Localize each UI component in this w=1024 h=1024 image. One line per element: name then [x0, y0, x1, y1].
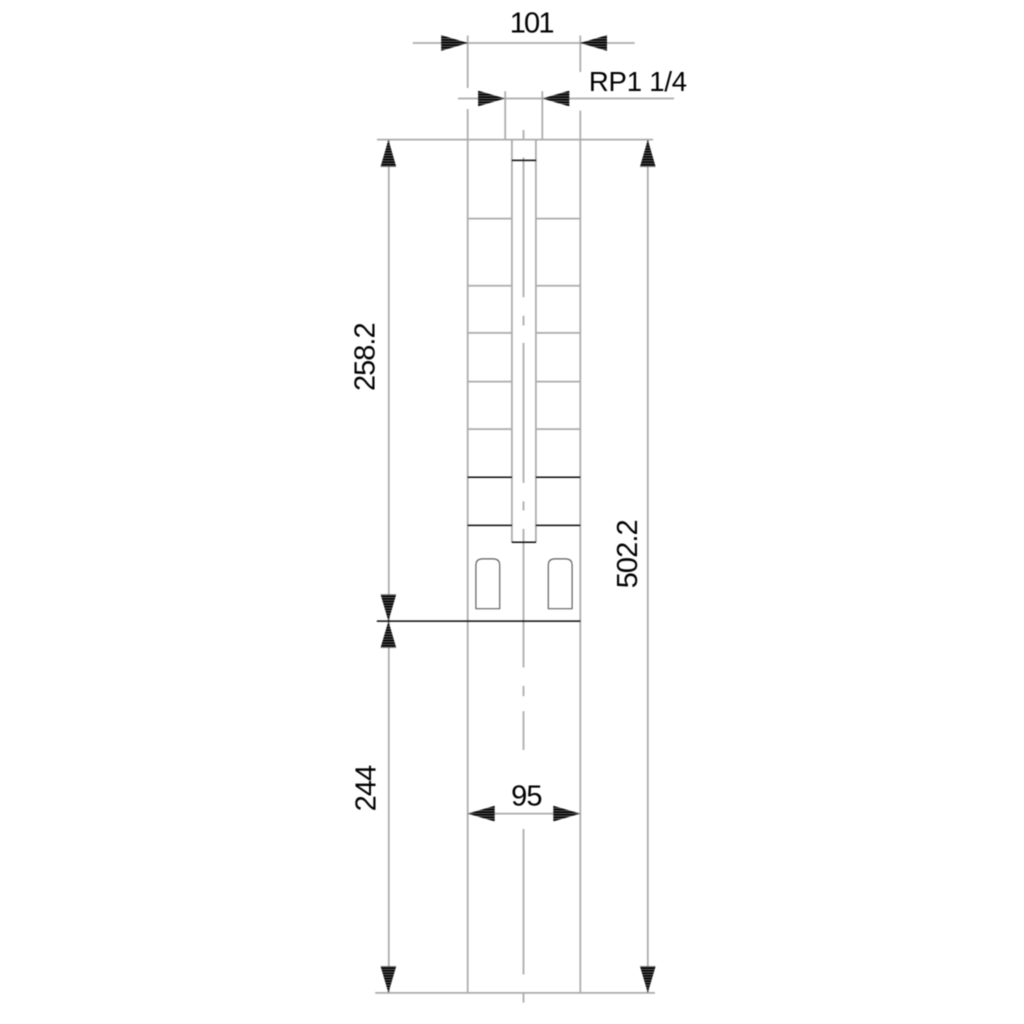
svg-text:502.2: 502.2	[612, 520, 644, 588]
svg-text:244: 244	[350, 765, 382, 812]
svg-text:RP1 1/4: RP1 1/4	[589, 66, 687, 97]
svg-text:258.2: 258.2	[349, 323, 381, 391]
svg-text:95: 95	[511, 781, 542, 813]
svg-text:101: 101	[510, 8, 554, 40]
